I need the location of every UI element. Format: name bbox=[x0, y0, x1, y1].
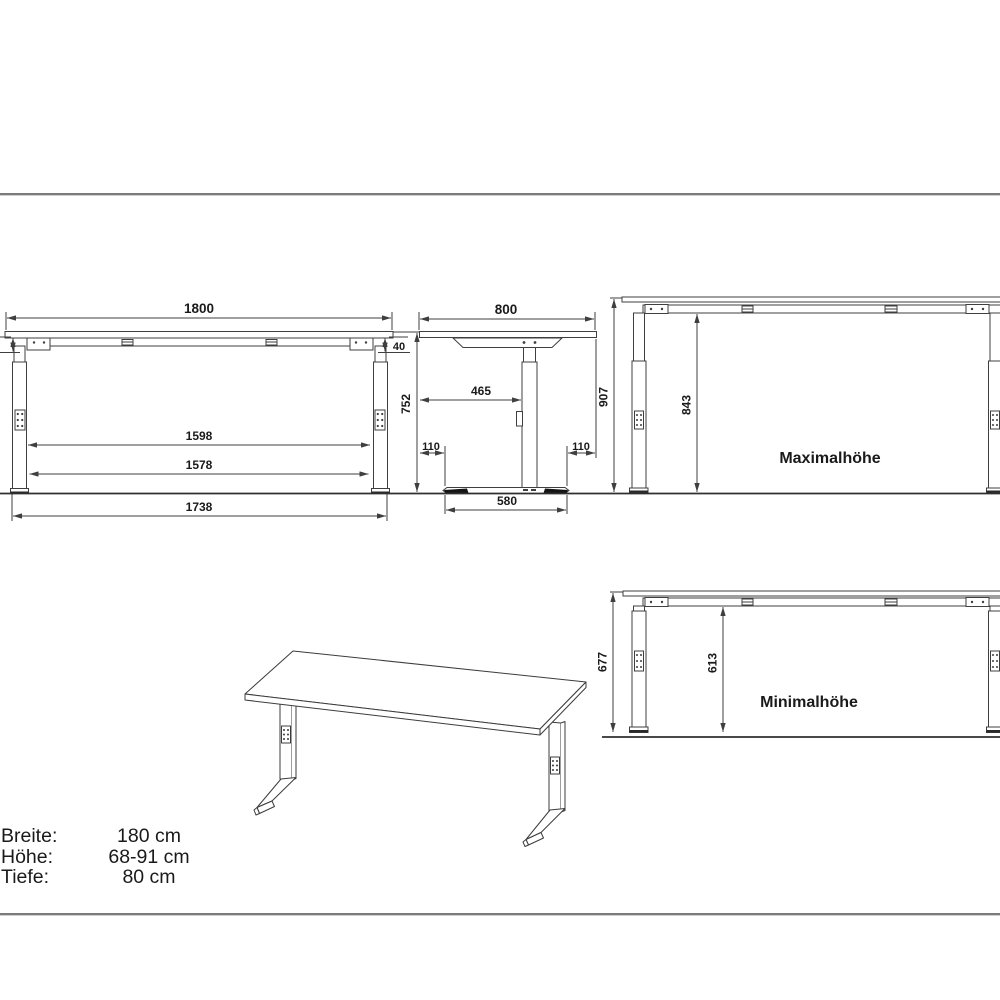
front-dim-inner-lower-label: 1578 bbox=[186, 458, 213, 472]
front-dim-inner-upper-label: 1598 bbox=[186, 429, 213, 443]
spec-row-hoehe: Höhe: 68-91 cm bbox=[1, 847, 219, 868]
spec-value-breite: 180 cm bbox=[79, 826, 219, 847]
perspective-left-foot bbox=[257, 778, 296, 808]
front-right-leg bbox=[372, 346, 390, 494]
side-leg-column bbox=[517, 348, 538, 489]
front-dim-height-label: 752 bbox=[399, 394, 413, 414]
perspective-left-leg bbox=[254, 700, 296, 816]
front-view: 1800 bbox=[0, 301, 420, 521]
front-dim-foot-span-label: 1738 bbox=[186, 500, 213, 514]
perspective-right-leg-connector bbox=[551, 757, 560, 774]
max-height-view: 907 843 Maximalhöhe bbox=[597, 297, 1000, 493]
side-frame-bracket bbox=[453, 338, 562, 348]
max-tabletop bbox=[622, 297, 1000, 302]
side-dim-foot-inset-right-label: 110 bbox=[572, 441, 590, 453]
side-dim-foot-inset-right bbox=[567, 339, 596, 486]
spec-value-hoehe: 68-91 cm bbox=[79, 847, 219, 868]
side-foot bbox=[443, 488, 569, 494]
min-dim-total-height bbox=[610, 592, 623, 732]
spec-label-hoehe: Höhe: bbox=[1, 847, 79, 868]
front-dim-frame-height-right-label: 40 bbox=[393, 341, 405, 353]
side-dim-depth-label: 800 bbox=[495, 302, 518, 317]
max-left-leg bbox=[630, 313, 649, 493]
spec-label-tiefe: Tiefe: bbox=[1, 867, 79, 888]
perspective-right-foot bbox=[526, 809, 565, 840]
perspective-left-leg-connector bbox=[282, 726, 291, 743]
min-dim-total-height-label: 677 bbox=[596, 652, 610, 672]
min-right-leg bbox=[987, 606, 1000, 733]
min-left-leg-connector bbox=[635, 651, 644, 671]
front-left-leg bbox=[11, 346, 29, 494]
min-frame-rail bbox=[643, 598, 1000, 607]
front-tabletop bbox=[5, 332, 393, 339]
min-dim-clearance-label: 613 bbox=[706, 653, 720, 673]
front-left-leg-connector bbox=[15, 410, 25, 430]
max-view-label: Maximalhöhe bbox=[779, 450, 880, 467]
max-dim-total-height bbox=[610, 298, 622, 492]
max-dim-total-height-label: 907 bbox=[597, 387, 611, 407]
max-left-leg-connector bbox=[635, 411, 644, 429]
min-height-view: 677 613 Minimalhöhe bbox=[596, 591, 1000, 737]
perspective-right-leg bbox=[523, 722, 565, 847]
side-tabletop bbox=[420, 332, 597, 338]
min-view-label: Minimalhöhe bbox=[760, 694, 858, 711]
product-specs: Breite: 180 cm Höhe: 68-91 cm Tiefe: 80 … bbox=[1, 826, 219, 888]
spec-value-tiefe: 80 cm bbox=[79, 867, 219, 888]
max-frame-rail bbox=[643, 305, 1000, 314]
spec-label-breite: Breite: bbox=[1, 826, 79, 847]
perspective-view bbox=[245, 651, 586, 847]
front-dim-top-width-label: 1800 bbox=[184, 301, 214, 316]
side-dim-column-offset-label: 465 bbox=[471, 384, 491, 398]
max-right-leg bbox=[987, 313, 1000, 493]
side-dim-foot-inset-left-label: 110 bbox=[422, 441, 440, 453]
side-dim-foot-length-label: 580 bbox=[497, 494, 517, 508]
side-column-handle bbox=[517, 412, 523, 427]
spec-row-tiefe: Tiefe: 80 cm bbox=[1, 867, 219, 888]
min-tabletop bbox=[623, 591, 1000, 596]
side-view: 800 465 110 bbox=[419, 302, 597, 514]
max-dim-clearance-label: 843 bbox=[680, 395, 694, 415]
spec-row-breite: Breite: 180 cm bbox=[1, 826, 219, 847]
front-right-leg-connector bbox=[375, 410, 385, 430]
min-left-leg bbox=[630, 606, 649, 733]
front-frame-rail bbox=[27, 338, 373, 350]
